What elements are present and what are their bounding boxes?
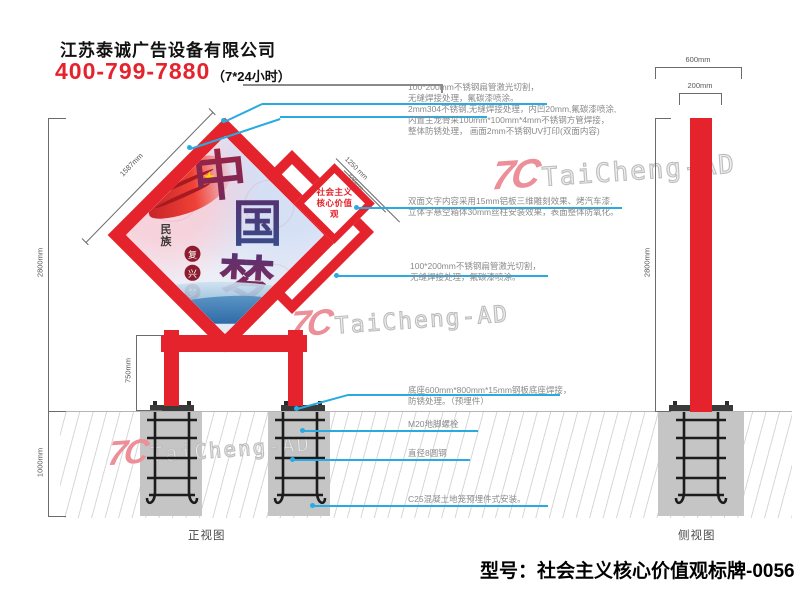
phone-number: 400-799-7880 [55, 58, 210, 85]
callout-round-steel: 直径8圆钢 [408, 448, 447, 459]
seal-char: 兴 [185, 265, 201, 281]
callout-text: 无缝焊接处理，氟碳漆喷涂。 [408, 93, 539, 104]
dim-label-panel-side: 1587mm [118, 151, 145, 178]
callout-text: 内置主龙骨采100mm*100mm*4mm不锈钢方管焊接， [408, 115, 616, 126]
callout-frame-tube-top: 100*200mm不锈钢扁管激光切割， 无缝焊接处理，氟碳漆喷涂。 [408, 82, 539, 104]
minzu-text: 民族 [161, 224, 174, 248]
dim-tick [48, 516, 66, 517]
core-values-line1: 社会主义 [313, 187, 356, 198]
dim-tick [721, 93, 722, 105]
dim-tick [655, 118, 671, 119]
side-view-label: 侧视图 [678, 527, 716, 543]
taicheng-watermark-text: TaiCheng-AD [334, 301, 510, 339]
callout-text: 整体防锈处理， 画面2mm不锈钢UV打印(双面内容) [408, 126, 616, 137]
dim-label-side-height: 2800mm [643, 235, 652, 291]
dim-label-leg-height: 750mm [124, 343, 133, 399]
leader-line [303, 430, 478, 432]
dim-line-750 [136, 335, 137, 411]
callout-frame-tube-mid: 100*200mm不锈钢扁管激光切割， 无缝焊接处理，氟碳漆喷涂。 [410, 261, 541, 283]
seal-char: 复 [185, 246, 201, 262]
callout-text: M20地脚螺栓 [408, 419, 459, 430]
callout-3d-letters: 双面文字内容采用15mm铝板三维雕刻效果、烤汽车漆, 立体字悬空箱体30mm丝柱… [408, 196, 619, 218]
dim-line-1000 [48, 412, 49, 516]
anchor-cage-right [273, 412, 327, 512]
anchor-bolt [673, 401, 677, 405]
callout-text: 立体字悬空箱体30mm丝柱安装效果，表面整体防氧化。 [408, 207, 619, 218]
leader-line [224, 103, 263, 122]
dim-line-2800-side [655, 118, 656, 411]
anchor-bolt [725, 401, 729, 405]
watermark: 7C TaiCheng-AD [289, 288, 510, 345]
service-hours: （7*24小时） [212, 66, 291, 85]
sign-pole-side [690, 118, 712, 412]
callout-text: 100*200mm不锈钢扁管激光切割， [408, 82, 539, 93]
callout-anchor-bolt: M20地脚螺栓 [408, 419, 459, 430]
dim-line-200 [679, 93, 721, 94]
dim-label-front-height: 2800mm [36, 235, 45, 291]
dim-label-foundation-depth: 1000mm [36, 435, 45, 491]
taicheng-logo-icon: 7C [489, 151, 540, 200]
anchor-bolt [187, 401, 191, 405]
callout-text: 双面文字内容采用15mm铝板三维雕刻效果、烤汽车漆, [408, 196, 619, 207]
callout-base-plate: 底座600mm*800mm*15mm钢板底座焊接， 防锈处理。（预埋件） [408, 385, 571, 407]
dim-label-pole-width: 200mm [672, 81, 728, 90]
dim-tick [48, 411, 66, 412]
dim-tick [655, 411, 671, 412]
leader-line [293, 459, 470, 461]
dim-line-600 [655, 67, 741, 68]
core-values-text: 社会主义 核心价值观 [313, 187, 356, 220]
anchor-cage-left [145, 412, 199, 512]
support-leg-right [288, 352, 303, 406]
callout-text: 2mm304不锈钢,无缝焊接处理，内凹20mm,氟碳漆喷涂, [408, 104, 616, 115]
leader-line [313, 505, 548, 507]
anchor-cage-side [674, 412, 728, 512]
dim-tick [655, 67, 656, 79]
dim-tick [741, 67, 742, 79]
callout-panel-body: 2mm304不锈钢,无缝焊接处理，内凹20mm,氟碳漆喷涂, 内置主龙骨采100… [408, 104, 616, 137]
dim-tick [136, 335, 162, 336]
model-number: 型号：社会主义核心价值观标牌-0056 [480, 556, 795, 583]
taicheng-logo-icon: 7C [105, 432, 148, 474]
drawing-canvas: 江苏泰诚广告设备有限公司 400-799-7880 （7*24小时） 7C Ta… [0, 0, 800, 600]
callout-text: 底座600mm*800mm*15mm钢板底座焊接， [408, 385, 571, 396]
dim-tick [136, 410, 162, 411]
callout-text: 直径8圆钢 [408, 448, 447, 459]
callout-text: 防锈处理。（预埋件） [408, 396, 571, 407]
anchor-bolt [153, 401, 157, 405]
support-leg-left [164, 352, 179, 406]
callout-concrete: C25混凝土地笼预埋件式安装。 [408, 494, 526, 505]
callout-text: C25混凝土地笼预埋件式安装。 [408, 494, 526, 505]
dim-line-2800-front [48, 118, 49, 411]
callout-text: 100*200mm不锈钢扁管激光切割， [410, 261, 541, 272]
callout-text: 无缝焊接处理，氟碳漆喷涂。 [410, 272, 541, 283]
dim-label-base-width: 600mm [668, 55, 728, 64]
dim-tick [48, 118, 66, 119]
front-view-label: 正视图 [188, 527, 226, 543]
core-values-line2: 核心价值观 [313, 198, 356, 220]
dim-tick [679, 93, 680, 105]
